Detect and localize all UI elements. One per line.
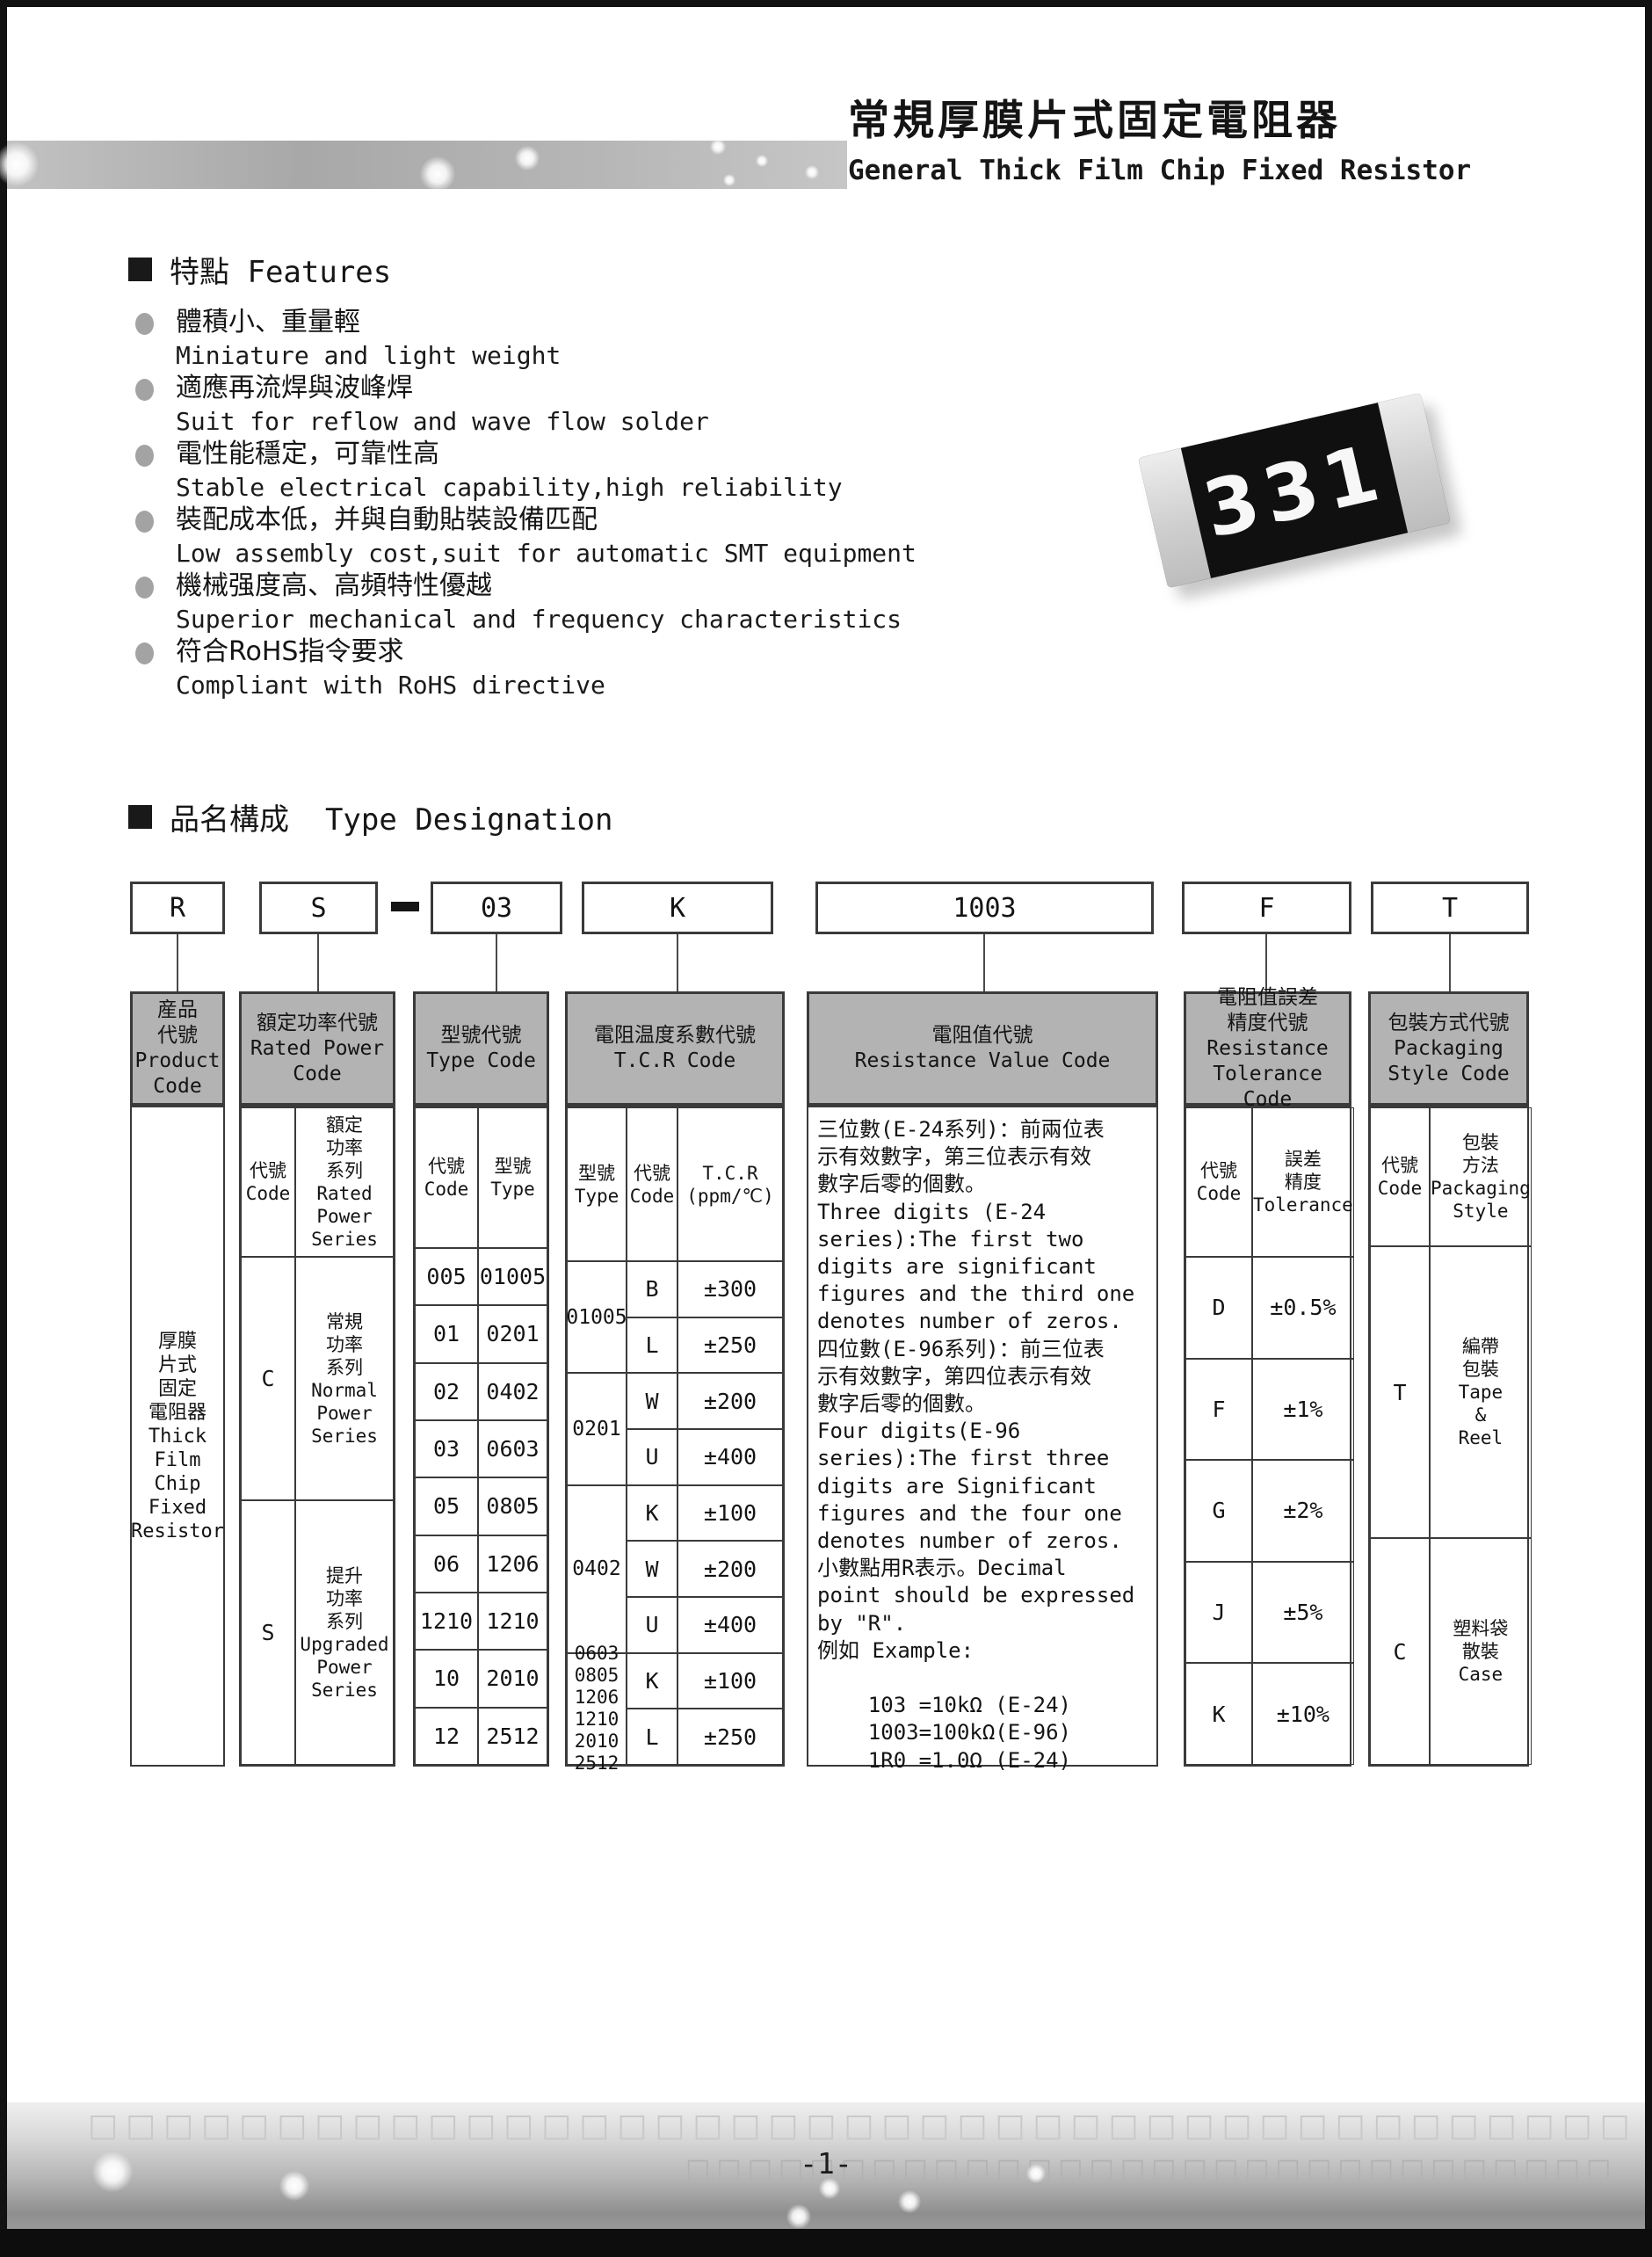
tcr-value: ±100 (677, 1653, 783, 1709)
type-size: 0603 (478, 1420, 547, 1477)
features-list: 體積小、重量輕 Miniature and light weight 適應再流焊… (130, 306, 1097, 701)
type-size: 2010 (478, 1650, 547, 1707)
type-code: 1210 (415, 1593, 478, 1650)
sparkle-dot (710, 139, 726, 155)
chip-resistor-image: 331 (1134, 388, 1459, 599)
type-code: 005 (415, 1248, 478, 1305)
page-number: -1- (738, 2146, 914, 2181)
tolerance-value: ±10% (1252, 1663, 1354, 1765)
sparkle-dot (515, 146, 540, 171)
tcr-sub-val: T.C.R (ppm/℃) (677, 1107, 783, 1261)
sparkle-dot (420, 156, 455, 192)
tolerance-table: 代號 Code 誤差 精度 Tolerance D ±0.5% F ±1% G … (1184, 1106, 1351, 1767)
tolerance-code: J (1185, 1562, 1252, 1664)
type-code: 02 (415, 1363, 478, 1420)
page-edge-top (0, 0, 1652, 7)
tcr-code: K (627, 1653, 677, 1709)
tcr-value: ±200 (677, 1541, 783, 1597)
code-box-tcr: K (582, 882, 773, 934)
sparkle-dot (723, 174, 735, 186)
col-header-type: 型號代號 Type Code (413, 991, 549, 1106)
sparkle-dot (786, 2204, 811, 2229)
tcr-code: L (627, 1709, 677, 1765)
tcr-table: 型號 Type 代號 Code T.C.R (ppm/℃) 01005 0201… (565, 1106, 785, 1767)
designation-section-heading: 品名構成 Type Designation (128, 795, 612, 838)
code-box-product: R (130, 882, 225, 934)
type-code: 12 (415, 1708, 478, 1765)
tcr-value: ±300 (677, 1261, 783, 1317)
list-item: 電性能穩定，可靠性高 Stable electrical capability,… (130, 438, 1097, 504)
col-header-tolerance: 電阻值誤差 精度代號 Resistance Tolerance Code (1184, 991, 1351, 1106)
sparkle-dot (92, 2152, 133, 2192)
col-header-resistance: 電阻值代號 Resistance Value Code (807, 991, 1158, 1106)
connector-line (1449, 934, 1451, 992)
col-header-product: 産品 代號 Product Code (130, 991, 225, 1106)
bullet-icon (135, 577, 154, 599)
product-body-cell: 厚膜 片式 固定 電阻器 Thick Film Chip Fixed Resis… (130, 1106, 225, 1767)
code-box-tolerance: F (1182, 882, 1351, 934)
connector-line (496, 934, 497, 992)
chip-body: 331 (1138, 393, 1451, 588)
tcr-type-group: 01005 (567, 1261, 627, 1373)
footer-squares-row (88, 2108, 1634, 2143)
feature-en: Stable electrical capability,high reliab… (176, 471, 1097, 504)
type-size: 0805 (478, 1477, 547, 1535)
sparkle-dot (1026, 2164, 1046, 2183)
feature-en: Low assembly cost,suit for automatic SMT… (176, 537, 1097, 570)
list-item: 裝配成本低，并與自動貼裝設備匹配 Low assembly cost,suit … (130, 504, 1097, 570)
type-size: 01005 (478, 1248, 547, 1305)
type-size: 1210 (478, 1593, 547, 1650)
code-box-resistance: 1003 (815, 882, 1154, 934)
chip-resistive-area: 331 (1181, 403, 1408, 578)
page-edge-left (0, 0, 7, 2257)
datasheet-page: 常規厚膜片式固定電阻器 General Thick Film Chip Fixe… (0, 0, 1652, 2257)
connector-line (177, 934, 178, 992)
sparkle-dot (756, 155, 768, 167)
packaging-code-C: C (1370, 1538, 1430, 1765)
type-size: 0201 (478, 1305, 547, 1362)
bullet-icon (135, 445, 154, 467)
resistance-description: 三位數(E-24系列)：前兩位表 示有效數字，第三位表示有效 數字后零的個數。 … (808, 1107, 1156, 1774)
feature-zh: 符合RoHS指令要求 (176, 635, 1097, 669)
sparkle-dot (819, 2178, 840, 2199)
feature-zh: 電性能穩定，可靠性高 (176, 438, 1097, 471)
type-size: 2512 (478, 1708, 547, 1765)
feature-en: Superior mechanical and frequency charac… (176, 603, 1097, 635)
tcr-sub-type: 型號 Type (567, 1107, 627, 1261)
connector-line (317, 934, 319, 992)
packaging-sub-code: 代號 Code (1370, 1107, 1430, 1246)
bullet-icon (135, 511, 154, 533)
power-code-C: C (241, 1257, 295, 1500)
feature-zh: 體積小、重量輕 (176, 306, 1097, 339)
tcr-value: ±250 (677, 1317, 783, 1374)
type-code: 05 (415, 1477, 478, 1535)
page-edge-bottom (0, 2229, 1652, 2257)
sparkle-dot (279, 2171, 309, 2201)
tcr-type-group: 0402 (567, 1485, 627, 1653)
list-item: 機械强度高、高頻特性優越 Superior mechanical and fre… (130, 570, 1097, 635)
type-size: 0402 (478, 1363, 547, 1420)
col-header-tcr: 電阻温度系數代號 T.C.R Code (565, 991, 785, 1106)
tcr-value: ±100 (677, 1485, 783, 1542)
list-item: 適應再流焊與波峰焊 Suit for reflow and wave flow … (130, 372, 1097, 438)
packaging-table: 代號 Code 包裝 方法 Packaging Style T 編帶 包裝 Ta… (1368, 1106, 1529, 1767)
page-edge-right (1645, 0, 1652, 2257)
header-gradient-bar (7, 141, 847, 189)
tolerance-value: ±0.5% (1252, 1257, 1354, 1359)
power-sub-code: 代號 Code (241, 1107, 295, 1257)
tolerance-code: D (1185, 1257, 1252, 1359)
designation-heading-label: 品名構成 Type Designation (170, 795, 612, 838)
packaging-code-T: T (1370, 1246, 1430, 1538)
tcr-code: U (627, 1429, 677, 1485)
tcr-value: ±400 (677, 1597, 783, 1653)
tolerance-sub-code: 代號 Code (1185, 1107, 1252, 1257)
resistance-body-cell: 三位數(E-24系列)：前兩位表 示有效數字，第三位表示有效 數字后零的個數。 … (807, 1106, 1158, 1767)
tcr-value: ±400 (677, 1429, 783, 1485)
tcr-type-group: 0201 (567, 1373, 627, 1484)
code-dash (391, 902, 419, 911)
col-header-packaging: 包裝方式代號 Packaging Style Code (1368, 991, 1529, 1106)
tcr-code: B (627, 1261, 677, 1317)
tcr-code: W (627, 1373, 677, 1429)
features-heading-label: 特點 Features (170, 248, 391, 291)
features-section-heading: 特點 Features (128, 248, 391, 291)
type-sub-code: 代號 Code (415, 1107, 478, 1248)
tcr-value: ±200 (677, 1373, 783, 1429)
section-square-icon (128, 805, 152, 829)
tcr-value: ±250 (677, 1709, 783, 1765)
sparkle-dot (0, 142, 39, 186)
tolerance-code: F (1185, 1359, 1252, 1461)
tcr-sub-code: 代號 Code (627, 1107, 677, 1261)
section-square-icon (128, 258, 152, 281)
tcr-code: W (627, 1541, 677, 1597)
type-sub-type: 型號 Type (478, 1107, 547, 1248)
page-title-zh: 常規厚膜片式固定電阻器 (848, 86, 1341, 147)
packaging-style-T: 編帶 包裝 Tape & Reel (1430, 1246, 1532, 1538)
tolerance-sub-tol: 誤差 精度 Tolerance (1252, 1107, 1354, 1257)
tcr-code: U (627, 1597, 677, 1653)
type-code: 10 (415, 1650, 478, 1707)
code-box-type: 03 (431, 882, 562, 934)
list-item: 體積小、重量輕 Miniature and light weight (130, 306, 1097, 372)
tcr-type-group: 0603 0805 1206 1210 2010 2512 (567, 1653, 627, 1765)
connector-line (677, 934, 678, 992)
feature-zh: 適應再流焊與波峰焊 (176, 372, 1097, 405)
tolerance-value: ±1% (1252, 1359, 1354, 1461)
connector-line (1265, 934, 1267, 992)
power-sub-series: 額定 功率 系列 Rated Power Series (295, 1107, 394, 1257)
type-code: 01 (415, 1305, 478, 1362)
bullet-icon (135, 313, 154, 335)
code-box-power: S (259, 882, 378, 934)
power-code-S: S (241, 1500, 295, 1765)
sparkle-dot (805, 165, 819, 179)
list-item: 符合RoHS指令要求 Compliant with RoHS directive (130, 635, 1097, 701)
feature-zh: 機械强度高、高頻特性優越 (176, 570, 1097, 603)
connector-line (983, 934, 985, 992)
feature-en: Miniature and light weight (176, 339, 1097, 372)
col-header-power: 額定功率代號 Rated Power Code (239, 991, 395, 1106)
type-code: 03 (415, 1420, 478, 1477)
tolerance-value: ±2% (1252, 1460, 1354, 1562)
chip-marking: 331 (1195, 425, 1394, 555)
type-size: 1206 (478, 1535, 547, 1593)
tcr-code: K (627, 1485, 677, 1542)
feature-en: Suit for reflow and wave flow solder (176, 405, 1097, 438)
tolerance-value: ±5% (1252, 1562, 1354, 1664)
feature-zh: 裝配成本低，并與自動貼裝設備匹配 (176, 504, 1097, 537)
power-series-S: 提升 功率 系列 Upgraded Power Series (295, 1500, 394, 1765)
sparkle-dot (898, 2190, 921, 2213)
bullet-icon (135, 379, 154, 401)
power-table: 代號 Code 額定 功率 系列 Rated Power Series C 常規… (239, 1106, 395, 1767)
feature-en: Compliant with RoHS directive (176, 669, 1097, 701)
code-box-packaging: T (1371, 882, 1529, 934)
power-series-C: 常規 功率 系列 Normal Power Series (295, 1257, 394, 1500)
bullet-icon (135, 642, 154, 664)
tcr-code: L (627, 1317, 677, 1374)
tolerance-code: G (1185, 1460, 1252, 1562)
packaging-sub-style: 包裝 方法 Packaging Style (1430, 1107, 1532, 1246)
type-table: 代號 Code 型號 Type 005 01005 01 0201 02 040… (413, 1106, 549, 1767)
page-title-en: General Thick Film Chip Fixed Resistor (848, 155, 1471, 186)
packaging-style-C: 塑料袋 散裝 Case (1430, 1538, 1532, 1765)
tolerance-code: K (1185, 1663, 1252, 1765)
type-code: 06 (415, 1535, 478, 1593)
